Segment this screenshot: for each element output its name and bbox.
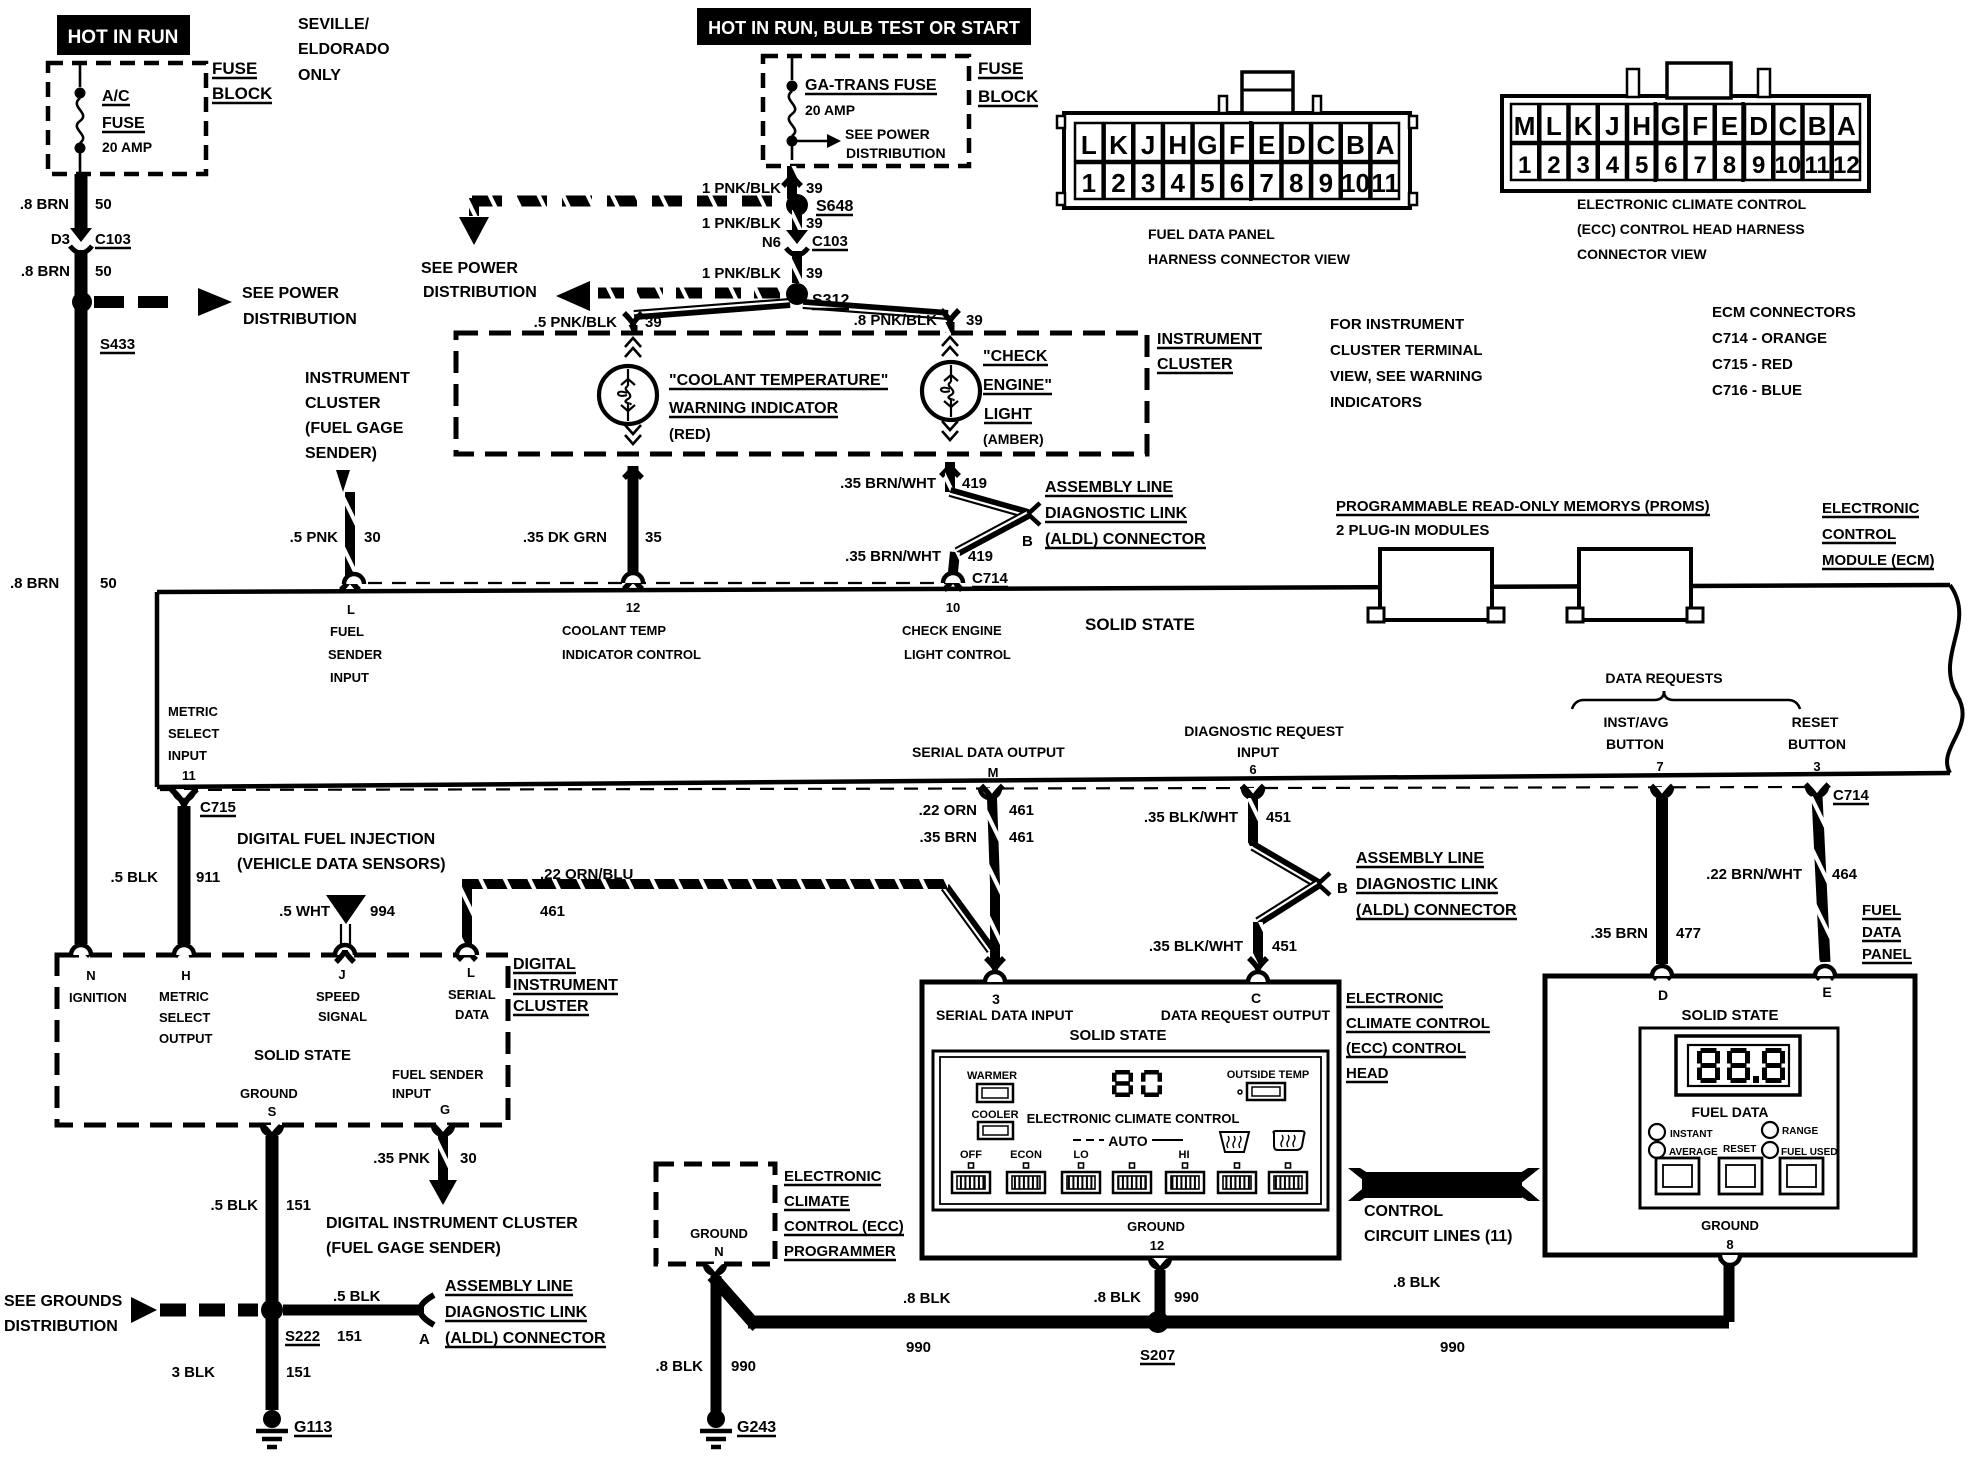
svg-text:39: 39 [966,312,983,329]
svg-text:ELECTRONIC: ELECTRONIC [784,1168,882,1185]
svg-text:DATA: DATA [455,1007,490,1022]
svg-text:B: B [1337,880,1348,897]
svg-text:GROUND: GROUND [1701,1218,1759,1233]
svg-text:LO: LO [1073,1149,1089,1161]
svg-text:8: 8 [1726,1237,1733,1252]
svg-text:ELECTRONIC: ELECTRONIC [1346,990,1444,1007]
svg-text:FUSE: FUSE [978,59,1023,78]
svg-text:30: 30 [460,1150,477,1167]
svg-text:HARNESS CONNECTOR VIEW: HARNESS CONNECTOR VIEW [1148,251,1351,267]
svg-text:S433: S433 [100,336,135,353]
svg-text:G: G [1661,111,1681,141]
svg-text:.8 BLK: .8 BLK [1093,1289,1141,1306]
svg-text:K: K [1109,130,1128,160]
svg-text:9: 9 [1319,168,1333,198]
svg-text:LIGHT: LIGHT [984,406,1032,423]
svg-text:PANEL: PANEL [1862,946,1912,963]
svg-text:N: N [86,968,95,983]
svg-text:ENGINE": ENGINE" [983,377,1052,394]
svg-text:DISTRIBUTION: DISTRIBUTION [846,145,946,161]
svg-text:BLOCK: BLOCK [978,87,1039,106]
svg-text:12: 12 [1833,152,1860,179]
svg-text:SEE POWER: SEE POWER [242,285,339,302]
svg-text:39: 39 [645,314,662,331]
svg-text:H: H [181,968,190,983]
svg-text:477: 477 [1676,925,1701,942]
svg-text:50: 50 [95,196,112,213]
svg-text:DATA REQUESTS: DATA REQUESTS [1605,670,1722,686]
svg-text:D3: D3 [51,231,70,248]
svg-text:FUEL DATA PANEL: FUEL DATA PANEL [1148,226,1275,242]
svg-text:B: B [1346,130,1365,160]
svg-text:(ALDL) CONNECTOR: (ALDL) CONNECTOR [1356,902,1517,919]
svg-text:L: L [347,602,355,617]
svg-text:4: 4 [1170,168,1185,198]
svg-text:11: 11 [1371,168,1399,198]
svg-text:"CHECK: "CHECK [983,348,1048,365]
svg-text:HOT IN RUN: HOT IN RUN [68,27,179,48]
svg-text:.35 PNK: .35 PNK [373,1150,430,1167]
svg-text:SEE GROUNDS: SEE GROUNDS [4,1293,123,1310]
svg-text:.35 BLK/WHT: .35 BLK/WHT [1144,809,1238,826]
svg-text:.5 BLK: .5 BLK [110,869,158,886]
svg-text:C103: C103 [812,233,848,250]
svg-text:DIGITAL FUEL INJECTION: DIGITAL FUEL INJECTION [237,831,435,848]
svg-text:GROUND: GROUND [240,1086,298,1101]
svg-text:L: L [1546,111,1562,141]
svg-text:ELECTRONIC CLIMATE CONTROL: ELECTRONIC CLIMATE CONTROL [1577,196,1807,212]
svg-text:6: 6 [1249,762,1256,777]
svg-text:10: 10 [1775,152,1802,179]
svg-text:CLIMATE: CLIMATE [784,1193,850,1210]
svg-text:10: 10 [1341,168,1370,198]
svg-text:20 AMP: 20 AMP [805,102,855,118]
svg-text:COOLER: COOLER [971,1109,1018,1121]
svg-text:F: F [1692,111,1708,141]
svg-text:PROGRAMMABLE READ-ONLY MEMORYS: PROGRAMMABLE READ-ONLY MEMORYS (PROMS) [1336,498,1710,515]
svg-text:GA-TRANS FUSE: GA-TRANS FUSE [805,77,937,94]
svg-text:CLUSTER: CLUSTER [513,998,589,1015]
svg-text:8: 8 [1289,168,1303,198]
svg-text:2: 2 [1547,152,1560,179]
svg-text:39: 39 [806,180,823,197]
svg-text:39: 39 [806,265,823,282]
svg-text:.35 BRN/WHT: .35 BRN/WHT [840,475,936,492]
svg-text:SPEED: SPEED [316,989,360,1004]
svg-text:(VEHICLE DATA SENSORS): (VEHICLE DATA SENSORS) [237,856,446,873]
svg-text:1: 1 [1518,152,1531,179]
svg-text:CHECK ENGINE: CHECK ENGINE [902,623,1002,638]
svg-text:.5 WHT: .5 WHT [279,903,330,920]
svg-text:C714: C714 [972,570,1009,587]
svg-text:12: 12 [1150,1238,1164,1253]
svg-text:ELDORADO: ELDORADO [298,41,390,58]
svg-text:.8 BLK: .8 BLK [903,1290,951,1307]
svg-text:D: D [1287,130,1306,160]
svg-text:ELECTRONIC CLIMATE CONTROL: ELECTRONIC CLIMATE CONTROL [1027,1111,1240,1126]
svg-text:1 PNK/BLK: 1 PNK/BLK [702,180,781,197]
svg-text:419: 419 [962,475,987,492]
svg-text:990: 990 [1440,1339,1465,1356]
svg-text:.35 BLK/WHT: .35 BLK/WHT [1149,938,1243,955]
svg-text:911: 911 [196,869,220,886]
svg-text:DATA: DATA [1862,924,1902,941]
svg-text:E: E [1258,130,1275,160]
svg-text:FUEL DATA: FUEL DATA [1692,1104,1769,1120]
svg-text:INPUT: INPUT [330,670,369,685]
svg-text:(FUEL GAGE: (FUEL GAGE [305,420,404,437]
svg-text:451: 451 [1266,809,1291,826]
svg-text:(ALDL) CONNECTOR: (ALDL) CONNECTOR [1045,531,1206,548]
svg-text:151: 151 [286,1364,311,1381]
svg-text:ONLY: ONLY [298,67,341,84]
svg-text:(AMBER): (AMBER) [983,431,1044,447]
svg-text:SEE POWER: SEE POWER [421,260,518,277]
svg-text:F: F [1229,130,1245,160]
svg-text:SENDER: SENDER [328,647,383,662]
svg-text:.8 BLK: .8 BLK [1393,1274,1441,1291]
svg-text:CLUSTER: CLUSTER [305,395,381,412]
svg-text:G: G [1197,130,1217,160]
svg-text:CONNECTOR VIEW: CONNECTOR VIEW [1577,246,1707,262]
svg-text:35: 35 [645,529,662,546]
svg-text:A: A [419,1331,430,1348]
svg-text:10: 10 [946,600,960,615]
svg-text:WARNING INDICATOR: WARNING INDICATOR [669,400,839,417]
svg-text:K: K [1574,111,1593,141]
svg-text:.8 PNK/BLK: .8 PNK/BLK [854,312,938,329]
svg-text:HI: HI [1179,1149,1190,1161]
svg-text:8: 8 [1723,152,1736,179]
svg-text:BUTTON: BUTTON [1606,736,1664,752]
svg-text:G243: G243 [737,1419,776,1436]
svg-text:SERIAL DATA OUTPUT: SERIAL DATA OUTPUT [912,744,1065,760]
svg-text:J: J [338,967,345,982]
svg-text:419: 419 [968,548,993,565]
svg-text:INDICATORS: INDICATORS [1330,394,1422,411]
svg-text:(ALDL) CONNECTOR: (ALDL) CONNECTOR [445,1330,606,1347]
svg-text:A/C: A/C [102,88,130,105]
svg-text:1 PNK/BLK: 1 PNK/BLK [702,215,781,232]
svg-text:AUTO: AUTO [1108,1133,1148,1149]
svg-text:A: A [1376,130,1395,160]
svg-text:G113: G113 [294,1419,332,1436]
svg-text:G: G [440,1102,450,1117]
svg-text:994: 994 [370,903,396,920]
svg-text:"COOLANT TEMPERATURE": "COOLANT TEMPERATURE" [669,372,888,389]
svg-text:GROUND: GROUND [1127,1219,1185,1234]
svg-text:4: 4 [1606,152,1620,179]
svg-text:DIAGNOSTIC LINK: DIAGNOSTIC LINK [1356,876,1499,893]
svg-text:DIAGNOSTIC REQUEST: DIAGNOSTIC REQUEST [1184,723,1344,739]
svg-text:E: E [1822,984,1831,1000]
svg-text:20 AMP: 20 AMP [102,139,152,155]
svg-text:461: 461 [540,903,565,920]
svg-text:151: 151 [286,1197,311,1214]
svg-text:SERIAL: SERIAL [448,987,496,1002]
svg-text:CONTROL (ECC): CONTROL (ECC) [784,1218,904,1235]
svg-text:.5 BLK: .5 BLK [210,1197,258,1214]
svg-text:.5 PNK: .5 PNK [290,529,339,546]
svg-text:39: 39 [806,215,823,232]
svg-text:H: H [1168,130,1187,160]
svg-text:ASSEMBLY LINE: ASSEMBLY LINE [445,1278,573,1295]
svg-text:FUEL: FUEL [1862,902,1901,919]
svg-text:L: L [467,965,475,980]
svg-text:HOT IN RUN, BULB TEST OR START: HOT IN RUN, BULB TEST OR START [708,18,1020,38]
svg-text:ECM CONNECTORS: ECM CONNECTORS [1712,304,1856,321]
svg-text:5: 5 [1635,152,1648,179]
svg-text:VIEW, SEE WARNING: VIEW, SEE WARNING [1330,368,1483,385]
svg-text:INPUT: INPUT [392,1086,431,1101]
svg-text:AVERAGE: AVERAGE [1669,1147,1718,1158]
svg-text:50: 50 [95,263,112,280]
svg-text:.22 ORN: .22 ORN [919,802,977,819]
svg-text:COOLANT TEMP: COOLANT TEMP [562,623,666,638]
svg-text:11: 11 [182,768,196,783]
svg-text:.5 BLK: .5 BLK [333,1288,381,1305]
svg-text:DATA REQUEST OUTPUT: DATA REQUEST OUTPUT [1161,1007,1331,1023]
svg-text:.8 BRN: .8 BRN [10,575,59,592]
svg-text:151: 151 [337,1328,362,1345]
svg-text:SOLID STATE: SOLID STATE [1682,1007,1779,1024]
svg-text:INSTRUMENT: INSTRUMENT [1157,331,1262,348]
svg-text:461: 461 [1009,802,1034,819]
svg-text:OUTSIDE TEMP: OUTSIDE TEMP [1227,1069,1310,1081]
svg-text:3: 3 [1141,168,1155,198]
svg-text:(RED): (RED) [669,426,711,443]
svg-text:DIGITAL: DIGITAL [513,956,576,973]
svg-text:SEVILLE/: SEVILLE/ [298,16,370,33]
svg-text:3 BLK: 3 BLK [172,1364,216,1381]
svg-text:J: J [1141,130,1155,160]
svg-text:FUEL USED: FUEL USED [1781,1147,1838,1158]
svg-text:CLIMATE CONTROL: CLIMATE CONTROL [1346,1015,1490,1032]
svg-text:J: J [1605,111,1619,141]
svg-text:SIGNAL: SIGNAL [318,1009,367,1024]
svg-text:FUSE: FUSE [212,59,257,78]
svg-text:INSTANT: INSTANT [1670,1129,1713,1140]
svg-text:12: 12 [626,600,640,615]
svg-text:DISTRIBUTION: DISTRIBUTION [4,1318,118,1335]
svg-text:ASSEMBLY LINE: ASSEMBLY LINE [1045,479,1173,496]
svg-text:50: 50 [100,575,117,592]
svg-text:OUTPUT: OUTPUT [159,1031,213,1046]
svg-text:.35 BRN: .35 BRN [1590,925,1648,942]
svg-text:990: 990 [906,1339,931,1356]
svg-text:CLUSTER: CLUSTER [1157,356,1233,373]
svg-text:.8 BRN: .8 BRN [20,196,69,213]
svg-text:ECON: ECON [1010,1149,1042,1161]
svg-text:INDICATOR CONTROL: INDICATOR CONTROL [562,647,701,662]
svg-text:451: 451 [1272,938,1297,955]
svg-text:H: H [1632,111,1651,141]
svg-text:LIGHT CONTROL: LIGHT CONTROL [904,647,1011,662]
svg-text:SOLID STATE: SOLID STATE [1070,1027,1167,1044]
svg-text:.8 BLK: .8 BLK [655,1358,703,1375]
svg-text:INPUT: INPUT [168,748,207,763]
svg-text:INSTRUMENT: INSTRUMENT [513,977,618,994]
svg-text:OFF: OFF [960,1149,982,1161]
svg-text:B: B [1022,533,1033,550]
svg-text:.35 DK GRN: .35 DK GRN [523,529,607,546]
svg-text:30: 30 [364,529,381,546]
svg-text:BUTTON: BUTTON [1788,736,1846,752]
svg-text:C716 - BLUE: C716 - BLUE [1712,382,1802,399]
svg-text:CLUSTER TERMINAL: CLUSTER TERMINAL [1330,342,1483,359]
svg-text:S648: S648 [816,198,853,215]
svg-text:M: M [1514,111,1536,141]
svg-text:7: 7 [1259,168,1273,198]
svg-text:S207: S207 [1140,1347,1175,1364]
svg-text:FUSE: FUSE [102,115,145,132]
svg-text:3: 3 [1813,759,1820,774]
svg-text:9: 9 [1752,152,1765,179]
svg-text:RANGE: RANGE [1782,1126,1818,1137]
svg-text:6: 6 [1664,152,1677,179]
svg-text:CONTROL: CONTROL [1364,1203,1443,1220]
svg-text:SELECT: SELECT [168,726,219,741]
svg-text:SOLID STATE: SOLID STATE [254,1047,351,1064]
svg-text:M: M [988,765,999,780]
svg-text:1 PNK/BLK: 1 PNK/BLK [702,265,781,282]
svg-text:C715 - RED: C715 - RED [1712,356,1793,373]
svg-text:WARMER: WARMER [967,1070,1017,1082]
svg-text:S: S [268,1104,277,1119]
svg-text:CIRCUIT LINES (11): CIRCUIT LINES (11) [1364,1228,1512,1245]
svg-text:.35 BRN/WHT: .35 BRN/WHT [845,548,941,565]
svg-text:HEAD: HEAD [1346,1065,1389,1082]
svg-text:C: C [1778,111,1797,141]
svg-text:6: 6 [1230,168,1244,198]
svg-text:990: 990 [1174,1289,1199,1306]
svg-text:CONTROL: CONTROL [1822,526,1896,543]
svg-text:.8 BRN: .8 BRN [21,263,70,280]
svg-text:S222: S222 [285,1328,320,1345]
svg-text:C: C [1251,990,1261,1006]
svg-text:464: 464 [1832,866,1858,883]
svg-text:SELECT: SELECT [159,1010,210,1025]
svg-text:C103: C103 [95,231,131,248]
svg-text:.22 BRN/WHT: .22 BRN/WHT [1706,866,1802,883]
svg-text:SENDER): SENDER) [305,445,377,462]
svg-text:N6: N6 [762,234,781,251]
svg-text:3: 3 [1576,152,1589,179]
svg-text:FOR INSTRUMENT: FOR INSTRUMENT [1330,316,1464,333]
svg-text:IGNITION: IGNITION [69,990,127,1005]
svg-text:DIAGNOSTIC LINK: DIAGNOSTIC LINK [445,1304,588,1321]
svg-text:A: A [1837,111,1856,141]
svg-text:BLOCK: BLOCK [212,84,273,103]
svg-text:.22 ORN/BLU: .22 ORN/BLU [540,866,633,883]
svg-text:D: D [1658,987,1668,1003]
svg-text:DIAGNOSTIC LINK: DIAGNOSTIC LINK [1045,505,1188,522]
svg-text:SERIAL DATA INPUT: SERIAL DATA INPUT [936,1007,1074,1023]
svg-text:DISTRIBUTION: DISTRIBUTION [243,311,357,328]
svg-text:11: 11 [1804,152,1829,179]
svg-text:FUEL SENDER: FUEL SENDER [392,1067,484,1082]
svg-text:E: E [1721,111,1738,141]
svg-text:2: 2 [1111,168,1125,198]
svg-text:(FUEL GAGE SENDER): (FUEL GAGE SENDER) [326,1240,501,1257]
svg-text:SEE POWER: SEE POWER [845,126,930,142]
svg-text:(ECC) CONTROL: (ECC) CONTROL [1346,1040,1466,1057]
svg-text:C714: C714 [1833,787,1870,804]
svg-text:D: D [1749,111,1768,141]
svg-text:.5 PNK/BLK: .5 PNK/BLK [534,314,618,331]
svg-text:METRIC: METRIC [168,704,218,719]
svg-text:RESET: RESET [1723,1144,1756,1155]
svg-text:.35 BRN: .35 BRN [919,829,977,846]
svg-text:METRIC: METRIC [159,989,209,1004]
svg-text:1: 1 [1082,168,1096,198]
svg-text:(ECC) CONTROL HEAD HARNESS: (ECC) CONTROL HEAD HARNESS [1577,221,1805,237]
svg-text:7: 7 [1693,152,1706,179]
svg-text:2 PLUG-IN MODULES: 2 PLUG-IN MODULES [1336,522,1489,539]
svg-text:ELECTRONIC: ELECTRONIC [1822,500,1920,517]
svg-text:B: B [1808,111,1827,141]
svg-text:PROGRAMMER: PROGRAMMER [784,1243,896,1260]
svg-text:MODULE (ECM): MODULE (ECM) [1822,552,1935,569]
svg-text:461: 461 [1009,829,1034,846]
svg-text:INPUT: INPUT [1237,744,1279,760]
svg-text:N: N [714,1244,723,1259]
svg-text:L: L [1081,130,1097,160]
svg-text:DIGITAL INSTRUMENT CLUSTER: DIGITAL INSTRUMENT CLUSTER [326,1215,578,1232]
svg-text:S312: S312 [812,292,849,309]
svg-text:5: 5 [1200,168,1214,198]
svg-text:INST/AVG: INST/AVG [1603,714,1668,730]
svg-text:C: C [1317,130,1336,160]
svg-text:ASSEMBLY LINE: ASSEMBLY LINE [1356,850,1484,867]
svg-text:GROUND: GROUND [690,1226,748,1241]
svg-text:FUEL: FUEL [330,624,364,639]
svg-text:INSTRUMENT: INSTRUMENT [305,370,410,387]
svg-text:990: 990 [731,1358,756,1375]
svg-text:7: 7 [1656,759,1663,774]
svg-text:SOLID STATE: SOLID STATE [1085,615,1195,634]
svg-text:RESET: RESET [1792,714,1839,730]
svg-text:C715: C715 [200,799,236,816]
svg-text:3: 3 [992,991,1000,1007]
svg-text:C714 - ORANGE: C714 - ORANGE [1712,330,1827,347]
svg-text:DISTRIBUTION: DISTRIBUTION [423,284,537,301]
